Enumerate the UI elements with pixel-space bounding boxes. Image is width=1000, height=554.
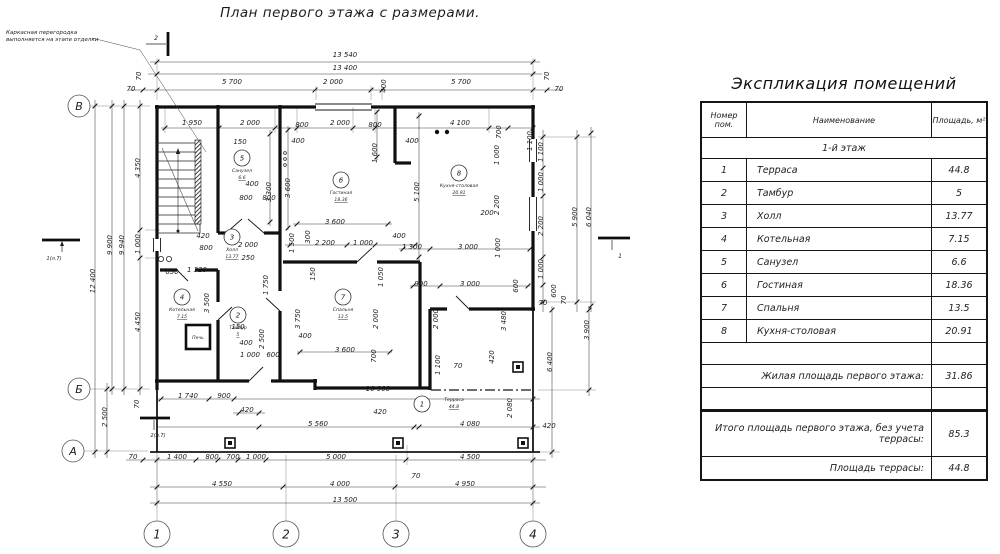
fixture-circle (158, 256, 163, 261)
dimension-label: 150 (309, 267, 317, 281)
room-name: Кухня-столовая (440, 183, 478, 189)
vent-dot (435, 130, 439, 134)
dimension-label: 1 000 (537, 258, 545, 279)
dimension-label: 4 100 (450, 119, 471, 127)
spacer (702, 388, 931, 409)
dimension-label: 70 (135, 71, 143, 80)
header-room-area: Площадь, м² (931, 103, 986, 137)
room-area: 18.36 (334, 197, 347, 203)
room-name: Тамбур (229, 325, 247, 331)
stair-arrow-head (176, 148, 180, 154)
dimension-label: 12 400 (89, 268, 97, 293)
room-name: Котельная (747, 228, 931, 250)
header-room-name: Наименование (747, 103, 931, 137)
schedule-title: Экспликация помещений (700, 74, 988, 93)
dimension-label: 2 000 (240, 119, 261, 127)
dimension-label: 1 300 (402, 243, 423, 251)
dimension-label: 2 200 (493, 194, 501, 215)
room-area: 20.91 (452, 190, 465, 196)
dimension-label: 1 100 (434, 354, 442, 375)
dimension-label: 70 (127, 85, 136, 93)
schedule-section-row: 1-й этаж (702, 137, 986, 158)
dimension-label: 4 000 (330, 480, 351, 488)
schedule-table: Номер пом.НаименованиеПлощадь, м²1-й эта… (700, 101, 988, 481)
room-number: 2 (702, 182, 747, 204)
dimension-label: 5 560 (308, 420, 329, 428)
room-number: 5 (702, 251, 747, 273)
doors-line (266, 298, 280, 311)
room-name: Кухня-столовая (747, 320, 931, 342)
dimension-label: 9 940 (118, 234, 126, 255)
dimension-label: 6 400 (546, 351, 554, 372)
room-number: 1 (702, 159, 747, 181)
dimension-label: 1 000 (494, 237, 502, 258)
dimension-label: 2 000 (238, 241, 259, 249)
room-number: 3 (230, 234, 234, 242)
dimension-label: 4 080 (460, 420, 481, 428)
dimension-label: 600 (550, 284, 558, 298)
spacer (702, 343, 931, 364)
dimension-label: 2 500 (101, 406, 109, 427)
dimension-label: 70 (133, 399, 141, 408)
doors-line (357, 248, 372, 262)
dimension-label: 2 200 (315, 239, 336, 247)
room-number: 4 (702, 228, 747, 250)
room-area: 7.15 (177, 314, 187, 320)
spacer-area (931, 388, 986, 409)
room-area: 7.15 (931, 228, 986, 250)
vent-dot (445, 130, 449, 134)
room-area: 18.36 (931, 274, 986, 296)
dimension-label: 5 700 (451, 78, 472, 86)
dimension-label: 200 (480, 209, 494, 217)
room-name: Санузел (232, 168, 252, 174)
room-area: 13.77 (931, 205, 986, 227)
room-name: Терраса (444, 397, 464, 403)
terrace-post-core (521, 441, 525, 445)
vent-hole (284, 152, 287, 155)
dimension-label: 1 000 (246, 453, 267, 461)
dimension-label: 2 000 (372, 308, 380, 329)
terrace-area-label: Площадь террасы: (702, 457, 931, 479)
schedule-row: 7Спальня13.5 (702, 296, 986, 319)
dimension-label: 1 000 (493, 144, 501, 165)
dimension-label: 420 (488, 350, 496, 364)
room-number: 6 (702, 274, 747, 296)
room-name: Котельная (169, 307, 195, 313)
dimension-label: 300 (304, 230, 312, 244)
dimension-label: 1 950 (182, 119, 203, 127)
dimension-label: 1 600 (371, 142, 379, 163)
dimension-label: 70 (539, 299, 548, 307)
schedule-spacer-row (702, 387, 986, 409)
dimension-label: 3 750 (294, 308, 302, 329)
room-number: 6 (339, 177, 344, 185)
dimension-label: 1 000 (353, 239, 374, 247)
room-area: 13.77 (225, 254, 238, 260)
dimension-label: 1 500 (288, 232, 296, 253)
room-number: 2 (236, 312, 241, 320)
dimension-label: 6 040 (585, 206, 593, 227)
dimension-label: 420 (196, 232, 210, 240)
fixtures-line (162, 148, 198, 231)
doors-line (456, 296, 469, 309)
dimension-label: 400 (291, 137, 305, 145)
dimension-label: 800 (205, 453, 219, 461)
room-name: Гостиная (747, 274, 931, 296)
dimension-label: 700 (226, 453, 240, 461)
dimension-label: 4 450 (134, 311, 142, 332)
dimension-label: 800 (239, 194, 253, 202)
dimension-label: 1 000 (134, 233, 142, 254)
dimension-label: 70 (560, 295, 568, 304)
dimension-label: 1 000 (537, 171, 545, 192)
axis-row-label: А (68, 445, 77, 458)
dimension-label: 10 900 (366, 385, 391, 393)
frame-partition (195, 140, 201, 224)
room-name: Холл (747, 205, 931, 227)
spacer-area (931, 343, 986, 364)
dimension-label: 13 540 (333, 51, 358, 59)
terrace-area-value: 44.8 (931, 457, 986, 479)
room-area: 44.8 (931, 159, 986, 181)
room-area: 5 (931, 182, 986, 204)
terrace-post-core (228, 441, 232, 445)
room-area: 13.5 (931, 297, 986, 319)
dimension-label: 1 400 (167, 453, 188, 461)
dimension-label: 400 (405, 137, 419, 145)
vent-hole (284, 158, 287, 161)
dimension-label: 3 600 (325, 218, 346, 226)
dimension-label: 800 (199, 244, 213, 252)
room-number: 1 (420, 401, 424, 409)
terrace-post-core (396, 441, 400, 445)
schedule-row: 8Кухня-столовая20.91 (702, 319, 986, 342)
floor-plan-drawing: Печь13 54013 4005 7002 0004005 700707070… (0, 0, 680, 554)
dimension-label: 2 000 (432, 308, 440, 329)
dimension-label: 4 500 (460, 453, 481, 461)
dimension-label: 900 (217, 392, 231, 400)
header-room-number: Номер пом. (702, 103, 747, 137)
dimension-label: 3 600 (335, 346, 356, 354)
living-area-label: Жилая площадь первого этажа: (702, 365, 931, 387)
dimension-label: 400 (298, 332, 312, 340)
dimension-label: 250 (241, 254, 255, 262)
note-leader (92, 38, 206, 152)
room-number: 5 (240, 155, 245, 163)
schedule-row: 1Терраса44.8 (702, 158, 986, 181)
dimension-label: 420 (542, 422, 556, 430)
section-floor-label: 1-й этаж (702, 138, 986, 158)
dimension-label: 1 740 (178, 392, 199, 400)
room-area: 13.5 (338, 314, 348, 320)
dimension-label: 2 000 (330, 119, 351, 127)
dimension-label: 420 (373, 408, 387, 416)
room-name: Санузел (747, 251, 931, 273)
dimension-label: 600 (266, 351, 280, 359)
dimension-label: 2 200 (537, 215, 545, 236)
schedule-row: 4Котельная7.15 (702, 227, 986, 250)
dimension-label: 4 550 (212, 480, 233, 488)
dimension-label: 3 000 (458, 243, 479, 251)
dimension-label: 9 900 (106, 234, 114, 255)
section-mark-label: 1(л.7) (46, 256, 61, 262)
room-name: Спальня (747, 297, 931, 319)
room-number: 8 (702, 320, 747, 342)
doors-line (249, 367, 263, 381)
schedule-spacer-row (702, 342, 986, 364)
schedule-summary-row: Жилая площадь первого этажа:31.86 (702, 364, 986, 387)
dimension-label: 1 100 (537, 141, 545, 162)
dimension-label: 70 (129, 453, 138, 461)
dimension-label: 420 (240, 406, 254, 414)
dimension-label: 400 (245, 180, 259, 188)
schedule-summary-row: Итого площадь первого этажа, без учета т… (702, 409, 986, 456)
schedule-header-row: Номер пом.НаименованиеПлощадь, м² (702, 103, 986, 137)
room-number: 7 (702, 297, 747, 319)
dimension-label: 400 (380, 79, 388, 93)
dimension-label: 400 (239, 339, 253, 347)
dimension-label: 5 700 (222, 78, 243, 86)
dimension-label: 70 (454, 362, 463, 370)
section-mark-label: 2(л.7) (150, 433, 165, 439)
dimension-label: 800 (295, 121, 309, 129)
dimension-label: 800 (262, 194, 276, 202)
room-name: Гостиная (330, 190, 352, 196)
dimension-label: 4 950 (455, 480, 476, 488)
room-markers: 1Терраса44.82Тамбур53Холл13.774Котельная… (169, 150, 478, 412)
dimension-label: 1 100 (526, 130, 534, 151)
dimension-label: 70 (543, 71, 551, 80)
room-number: 7 (341, 294, 346, 302)
schedule-row: 3Холл13.77 (702, 204, 986, 227)
room-name: Терраса (747, 159, 931, 181)
dimension-label: 800 (368, 121, 382, 129)
room-name: Холл (225, 247, 238, 253)
doors-line (248, 219, 264, 233)
section-mark-label: 1 (618, 253, 622, 260)
dimension-label: 4 350 (134, 157, 142, 178)
room-area: 44.8 (449, 404, 459, 410)
room-number: 8 (457, 170, 462, 178)
dimension-label: 13 400 (333, 64, 358, 72)
fixture-circle (166, 256, 171, 261)
axis-row-label: Б (75, 383, 83, 396)
dimension-label: 630 (165, 268, 179, 276)
dimension-label: 700 (370, 349, 378, 363)
axis-col-label: 2 (282, 528, 290, 542)
living-area-value: 31.86 (931, 365, 986, 387)
axis-row-label: В (75, 100, 83, 113)
room-area: 6.6 (238, 175, 245, 181)
room-schedule: Экспликация помещений Номер пом.Наименов… (700, 74, 988, 481)
dimension-label: 150 (233, 138, 247, 146)
dimension-label: 3 480 (500, 310, 508, 331)
room-number: 4 (180, 294, 184, 302)
axis-col-label: 3 (392, 528, 400, 542)
total-area-value: 85.3 (931, 412, 986, 456)
schedule-row: 6Гостиная18.36 (702, 273, 986, 296)
dimension-label: 600 (512, 279, 520, 293)
dimension-label: 2 000 (323, 78, 344, 86)
axis-col-label: 4 (529, 528, 537, 542)
dimension-label: 5 000 (326, 453, 347, 461)
total-area-label: Итого площадь первого этажа, без учета т… (702, 412, 931, 456)
dimension-label: 3 600 (284, 177, 292, 198)
dimension-label: 1 050 (377, 266, 385, 287)
dimension-label: 70 (412, 472, 421, 480)
stove-label: Печь (192, 335, 204, 341)
section-mark-label: 2 (154, 35, 158, 42)
room-number: 3 (702, 205, 747, 227)
terrace-post-core (516, 365, 520, 369)
dimension-label: 2 500 (258, 328, 266, 349)
schedule-row: 2Тамбур5 (702, 181, 986, 204)
dimension-label: 5 100 (413, 181, 421, 202)
schedule-row: 5Санузел6.6 (702, 250, 986, 273)
dimension-label: 3 900 (583, 319, 591, 340)
dimension-label: 900 (414, 280, 428, 288)
schedule-summary-row: Площадь террасы:44.8 (702, 456, 986, 479)
dimension-label: 700 (495, 125, 503, 139)
axis-col-label: 1 (153, 528, 161, 542)
vent-hole (284, 164, 287, 167)
dimension-label: 2 080 (506, 397, 514, 418)
section-arrow (60, 241, 64, 246)
room-area: 6.6 (931, 251, 986, 273)
dimension-label: 3 000 (460, 280, 481, 288)
dimension-label: 400 (392, 232, 406, 240)
dimension-label: 1 000 (240, 351, 261, 359)
room-area: 5 (237, 332, 240, 338)
blueprint-page: План первого этажа с размерами. Каркасна… (0, 0, 1000, 554)
dimension-label: 1 320 (187, 266, 208, 274)
dimension-label: 70 (555, 85, 564, 93)
dimension-label: 3 500 (203, 292, 211, 313)
room-name: Спальня (333, 307, 354, 313)
stair-arrow-start (177, 230, 180, 233)
dimension-label: 13 500 (333, 496, 358, 504)
dimension-label: 5 900 (571, 206, 579, 227)
dimension-label: 1 750 (262, 274, 270, 295)
room-name: Тамбур (747, 182, 931, 204)
room-area: 20.91 (931, 320, 986, 342)
